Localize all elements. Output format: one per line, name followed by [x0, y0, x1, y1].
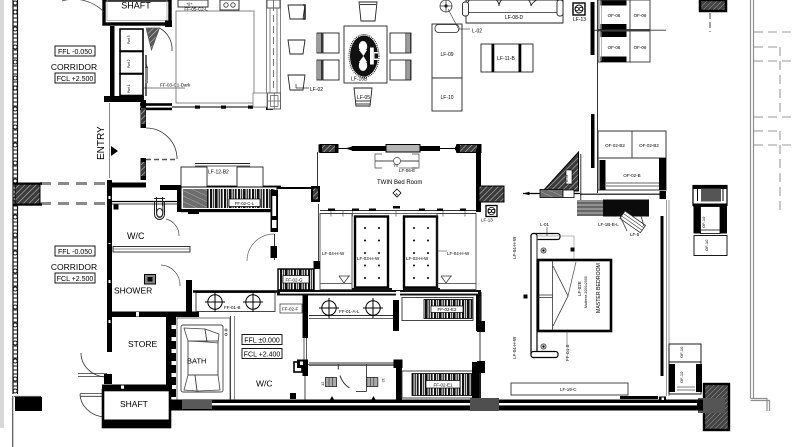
svg-text:OF-10: OF-10	[679, 346, 684, 358]
svg-text:FF-05-C2-L: FF-05-C2-L	[184, 7, 208, 12]
svg-text:FF-02-C-L: FF-02-C-L	[235, 201, 255, 206]
svg-text:LF-16B: LF-16B	[351, 77, 368, 83]
svg-text:FFL ±0.000: FFL ±0.000	[244, 338, 280, 345]
svg-text:FCL +2.500: FCL +2.500	[57, 276, 94, 283]
svg-text:LF-09: LF-09	[440, 52, 453, 58]
svg-text:FCL +2.500: FCL +2.500	[57, 76, 94, 83]
svg-text:LF-19-C: LF-19-C	[560, 387, 577, 392]
svg-text:L-01: L-01	[540, 222, 550, 227]
svg-text:SHAFT: SHAFT	[121, 1, 151, 11]
svg-text:LF-10: LF-10	[440, 95, 453, 101]
svg-text:LF-03-H-W: LF-03-H-W	[357, 256, 380, 261]
svg-text:OF-02-B2: OF-02-B2	[639, 143, 659, 148]
svg-text:FCL +2.400: FCL +2.400	[244, 352, 281, 359]
svg-text:LF-04: LF-04	[565, 174, 569, 182]
svg-text:FF-01-B: FF-01-B	[224, 305, 241, 310]
svg-text:Part 1: Part 1	[127, 84, 131, 93]
svg-text:LF-11-B: LF-11-B	[497, 56, 515, 62]
svg-text:SHAFT: SHAFT	[120, 399, 148, 409]
svg-text:FF-02-G: FF-02-G	[286, 278, 304, 283]
svg-text:FF-03-C1-Dark: FF-03-C1-Dark	[160, 83, 191, 88]
svg-text:LF-12-B2: LF-12-B2	[208, 170, 229, 176]
svg-text:FF-01-A-L: FF-01-A-L	[339, 309, 360, 314]
svg-text:LF-08-D: LF-08-D	[505, 15, 524, 21]
svg-text:OF-08: OF-08	[608, 45, 621, 50]
svg-text:W/C: W/C	[256, 379, 273, 389]
svg-text:OF-10: OF-10	[679, 371, 684, 383]
svg-text:OF-02-B: OF-02-B	[623, 173, 640, 178]
svg-text:LF-04-H-W: LF-04-H-W	[322, 251, 345, 256]
svg-text:OF-09: OF-09	[634, 45, 647, 50]
svg-text:OF-09: OF-09	[634, 13, 647, 18]
svg-text:FF-04-B: FF-04-B	[565, 344, 570, 361]
svg-text:LF-5: LF-5	[630, 232, 640, 237]
svg-text:LF-04-H-W: LF-04-H-W	[512, 336, 517, 359]
svg-text:OF-10: OF-10	[704, 239, 709, 251]
svg-text:LF-04-H-W: LF-04-H-W	[447, 251, 470, 256]
svg-text:W/C: W/C	[127, 231, 145, 241]
svg-text:LF-06-E: LF-06-E	[399, 168, 415, 173]
svg-text:ENTRY: ENTRY	[96, 126, 107, 160]
svg-text:OF-02-B2: OF-02-B2	[605, 143, 625, 148]
svg-text:A: A	[395, 192, 398, 197]
svg-text:CORRIDOR: CORRIDOR	[51, 262, 97, 272]
svg-text:FF-02-F: FF-02-F	[282, 307, 299, 312]
svg-text:FFL -0.050: FFL -0.050	[58, 249, 92, 256]
svg-text:12: 12	[381, 378, 386, 383]
svg-text:Part 2: Part 2	[127, 59, 131, 68]
svg-text:+||+: +||+	[186, 1, 193, 6]
svg-text:STORE: STORE	[128, 339, 157, 349]
svg-text:L-02: L-02	[472, 29, 482, 35]
svg-text:LF-04-H-W: LF-04-H-W	[512, 236, 517, 259]
svg-text:TWIN Bed Room: TWIN Bed Room	[377, 180, 422, 186]
svg-text:TV: TV	[393, 163, 398, 168]
svg-text:LF-13: LF-13	[481, 218, 493, 223]
svg-text:SHOWER: SHOWER	[114, 286, 152, 296]
svg-text:LF-03-H-W: LF-03-H-W	[406, 256, 429, 261]
svg-text:FF-02-E1: FF-02-E1	[433, 383, 453, 388]
svg-text:LF-1B-B-L: LF-1B-B-L	[598, 222, 619, 227]
svg-text:LF-02: LF-02	[310, 87, 323, 93]
svg-text:LF-05: LF-05	[357, 95, 370, 101]
svg-text:Mattress 2000x2000: Mattress 2000x2000	[584, 276, 588, 308]
svg-text:LF-13: LF-13	[573, 17, 586, 23]
svg-text:12: 12	[320, 381, 325, 386]
svg-text:OF-08: OF-08	[608, 13, 621, 18]
svg-text:FF-02-E2: FF-02-E2	[437, 307, 457, 312]
svg-text:BATH: BATH	[187, 357, 206, 366]
svg-text:FFL -0.050: FFL -0.050	[58, 49, 92, 56]
svg-text:MASTER BEDROOM: MASTER BEDROOM	[596, 263, 602, 313]
svg-text:Part 3: Part 3	[127, 35, 131, 44]
svg-text:OF-10: OF-10	[701, 216, 706, 228]
svg-text:CORRIDOR: CORRIDOR	[51, 62, 97, 72]
svg-text:LF-02E: LF-02E	[577, 281, 582, 296]
